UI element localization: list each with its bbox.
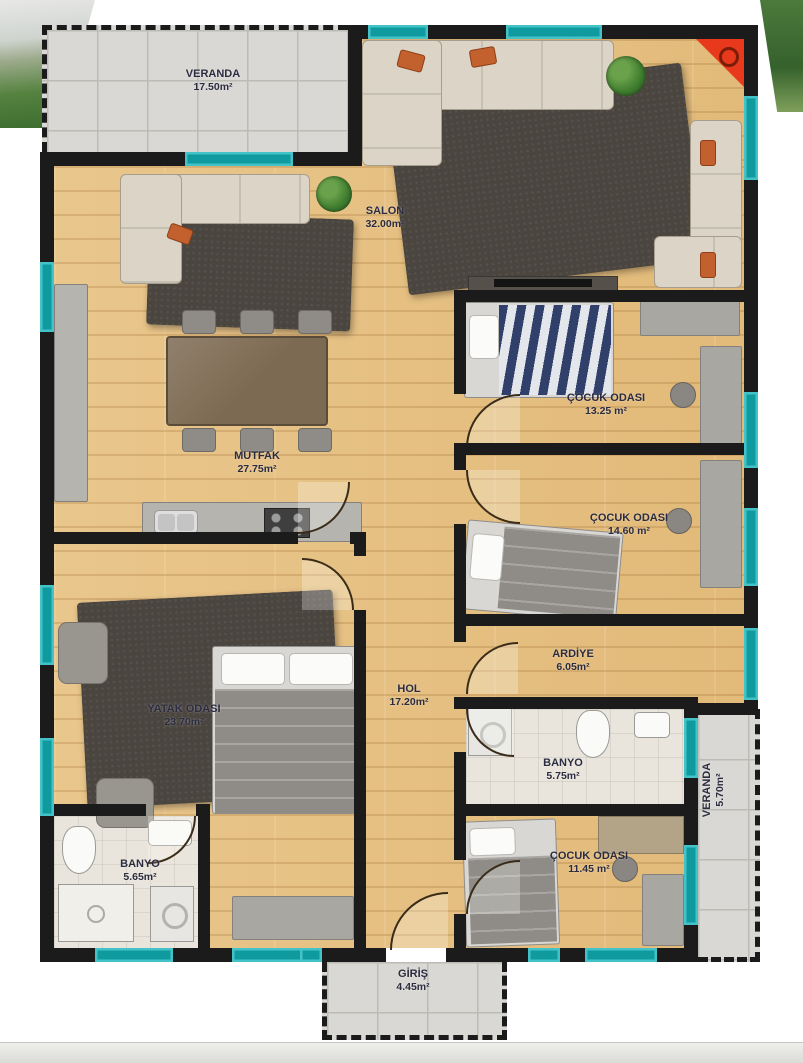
wall-banyo1-right <box>198 804 210 962</box>
window-marker <box>368 25 428 39</box>
wall-exterior-bottom-a <box>40 948 386 962</box>
wall-hol-west <box>354 610 366 948</box>
window-marker <box>744 96 758 180</box>
window-marker <box>40 738 54 816</box>
dresser-yatak <box>232 896 354 940</box>
washer-door <box>162 903 188 929</box>
room-name: SALON <box>366 205 405 217</box>
kitchen-cabinet-left <box>54 284 88 502</box>
room-name: ÇOCUK ODASI <box>567 392 645 404</box>
room-area: 14.60 m² <box>590 525 668 538</box>
wall-corridor-east <box>454 914 466 948</box>
bed-blanket-striped <box>499 305 611 395</box>
window-marker <box>506 25 602 39</box>
dining-chair <box>182 428 216 452</box>
background-photo-top-right <box>760 0 803 112</box>
north-marker-ring-icon <box>719 47 739 67</box>
window-marker <box>744 508 758 586</box>
window-marker <box>684 845 698 925</box>
room-name: ARDİYE <box>552 648 594 660</box>
window-marker <box>744 392 758 468</box>
floor-plan-page: VERANDA 17.50m² SALON 32.00m² MUTFAK 27.… <box>0 0 803 1063</box>
room-label-hol: HOL 17.20m² <box>389 683 428 709</box>
wall-salon-cocuk1 <box>454 290 758 302</box>
window-marker <box>684 718 698 778</box>
tv-icon <box>494 279 592 287</box>
armchair-yatak-2 <box>96 778 154 828</box>
room-name: HOL <box>397 683 420 695</box>
wall-mutfak-yatak <box>40 532 298 544</box>
bed-blanket <box>498 527 621 619</box>
window-marker <box>528 948 560 962</box>
kitchen-sink-icon <box>154 510 198 534</box>
cushion-salon-3 <box>700 140 716 166</box>
room-area: 23.70m² <box>147 716 220 729</box>
bed-pillow <box>289 653 353 685</box>
chair-cocuk-1 <box>670 382 696 408</box>
dining-chair <box>240 428 274 452</box>
room-name: ÇOCUK ODASI <box>550 850 628 862</box>
wall-cocuk1-cocuk2 <box>454 443 758 455</box>
bed-yatak-odasi <box>212 646 360 814</box>
wall-banyo2-cocuk3 <box>454 804 696 816</box>
room-area: 5.70m² <box>714 763 727 817</box>
room-name: YATAK ODASI <box>147 703 220 715</box>
bed-pillow <box>469 533 505 582</box>
window-marker <box>40 585 54 665</box>
toilet-icon-banyo-2 <box>576 710 610 758</box>
wall-corridor-east <box>454 290 466 394</box>
window-marker <box>40 262 54 332</box>
desk-cocuk-3 <box>598 816 684 854</box>
window-marker <box>185 152 293 166</box>
room-area: 5.75m² <box>543 770 583 783</box>
room-label-veranda-top: VERANDA 17.50m² <box>186 68 240 94</box>
armchair-yatak-1 <box>58 622 108 684</box>
shower-icon <box>58 884 134 942</box>
room-area: 13.25 m² <box>567 405 645 418</box>
shower-drain <box>87 905 105 923</box>
room-name: ÇOCUK ODASI <box>590 512 668 524</box>
room-area: 17.50m² <box>186 81 240 94</box>
dining-chair <box>298 428 332 452</box>
window-marker <box>585 948 657 962</box>
bottom-gray-strip <box>0 1042 803 1063</box>
dining-chair <box>298 310 332 334</box>
wall-hol-west <box>354 532 366 556</box>
room-label-banyo-1: BANYO 5.65m² <box>120 858 160 884</box>
room-area: 27.75m² <box>234 463 280 476</box>
floor-veranda-right <box>698 709 760 962</box>
room-label-banyo-2: BANYO 5.75m² <box>543 757 583 783</box>
washer-icon-banyo-1 <box>150 886 194 942</box>
wall-exterior-bottom-b <box>446 948 698 962</box>
room-label-veranda-right: VERANDA 5.70m² <box>701 763 727 817</box>
plant-icon-mutfak <box>316 176 352 212</box>
room-area: 17.20m² <box>389 696 428 709</box>
room-area: 4.45m² <box>396 981 429 994</box>
room-name: GİRİŞ <box>398 968 428 980</box>
dining-table <box>166 336 328 426</box>
bed-cocuk-1 <box>464 302 614 398</box>
room-name: VERANDA <box>701 763 713 817</box>
room-name: BANYO <box>543 757 583 769</box>
window-marker <box>744 628 758 700</box>
bed-pillow <box>469 827 516 857</box>
wall-ardiye-banyo2 <box>454 697 698 709</box>
room-label-salon: SALON 32.00m² <box>365 205 404 231</box>
sofa-salon-right-corner <box>654 236 742 288</box>
desk-cocuk-1 <box>700 346 742 446</box>
room-name: MUTFAK <box>234 450 280 462</box>
dining-chair <box>182 310 216 334</box>
room-area: 11.45 m² <box>550 863 628 876</box>
window-marker <box>232 948 310 962</box>
chair-cocuk-2 <box>666 508 692 534</box>
room-label-yatak-odasi: YATAK ODASI 23.70m² <box>147 703 220 729</box>
plant-icon-salon <box>606 56 646 96</box>
wall-banyo1-top <box>40 804 146 816</box>
dining-chair <box>240 310 274 334</box>
room-label-ardiye: ARDİYE 6.05m² <box>552 648 594 674</box>
wall-veranda-salon <box>348 25 362 166</box>
room-area: 6.05m² <box>552 661 594 674</box>
bed-pillow <box>469 315 499 359</box>
room-label-mutfak: MUTFAK 27.75m² <box>234 450 280 476</box>
room-label-cocuk-odasi-2: ÇOCUK ODASI 14.60 m² <box>590 512 668 538</box>
window-marker <box>300 948 322 962</box>
dresser-cocuk-1 <box>640 300 740 336</box>
dresser-cocuk-3 <box>642 874 684 946</box>
toilet-icon-banyo-1 <box>62 826 96 874</box>
sink-icon-banyo-2 <box>634 712 670 738</box>
room-label-giris: GİRİŞ 4.45m² <box>396 968 429 994</box>
sink-basin <box>158 514 175 531</box>
cushion-salon-4 <box>700 252 716 278</box>
desk-cocuk-2 <box>700 460 742 588</box>
room-area: 32.00m² <box>365 218 404 231</box>
bed-blanket <box>215 689 359 813</box>
sink-basin <box>177 514 194 531</box>
room-label-cocuk-odasi-1: ÇOCUK ODASI 13.25 m² <box>567 392 645 418</box>
window-marker <box>95 948 173 962</box>
room-label-cocuk-odasi-3: ÇOCUK ODASI 11.45 m² <box>550 850 628 876</box>
room-name: BANYO <box>120 858 160 870</box>
bed-pillow <box>221 653 285 685</box>
room-area: 5.65m² <box>120 871 160 884</box>
wall-cocuk2-ardiye <box>454 614 758 626</box>
room-name: VERANDA <box>186 68 240 80</box>
